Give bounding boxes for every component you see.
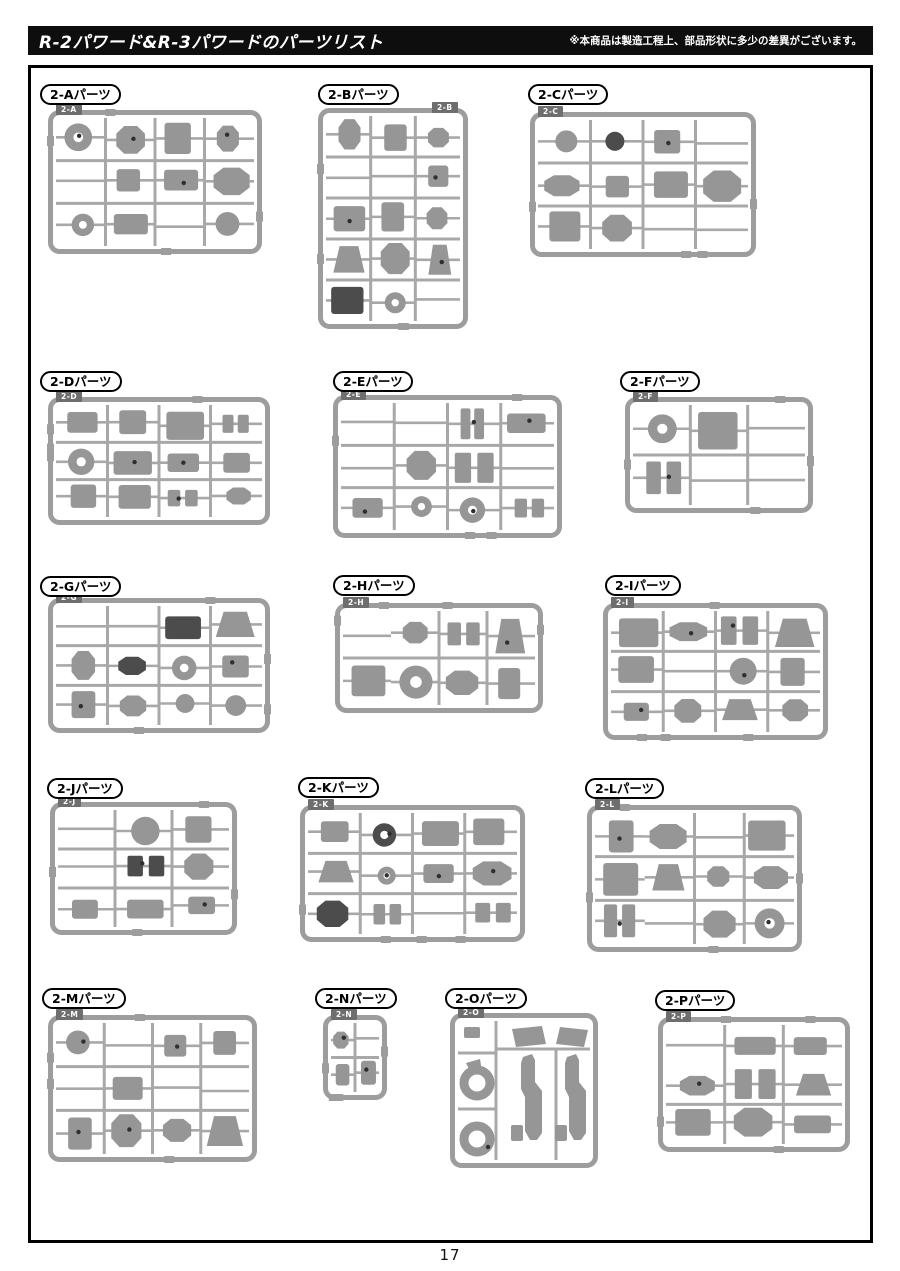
- section-label-2-g: 2-Gパーツ: [40, 576, 121, 597]
- runner-diagram-2-g: [48, 598, 270, 733]
- header-bar: R-2パワード&R-3パワードのパーツリスト ※本商品は製造工程上、部品形状に多…: [28, 26, 873, 55]
- runner-tag-2-c: 2-C: [538, 106, 563, 117]
- runner-diagram-2-k: [300, 805, 525, 942]
- runner-tag-2-f: 2-F: [633, 391, 658, 402]
- runner-tag-2-a: 2-A: [56, 104, 82, 115]
- runner-diagram-2-h: [335, 603, 543, 713]
- runner-tag-2-l: 2-L: [595, 799, 620, 810]
- manual-page: R-2パワード&R-3パワードのパーツリスト ※本商品は製造工程上、部品形状に多…: [0, 0, 900, 1271]
- runner-tag-2-m: 2-M: [56, 1009, 83, 1020]
- runner-diagram-2-o: [450, 1013, 598, 1168]
- section-label-2-h: 2-Hパーツ: [333, 575, 415, 596]
- runner-diagram-2-m: [48, 1015, 257, 1162]
- runner-diagram-2-a: [48, 110, 262, 254]
- section-label-2-b: 2-Bパーツ: [318, 84, 399, 105]
- runner-tag-2-p: 2-P: [666, 1011, 691, 1022]
- section-label-2-f: 2-Fパーツ: [620, 371, 700, 392]
- runner-tag-2-b: 2-B: [432, 102, 458, 113]
- header-note: ※本商品は製造工程上、部品形状に多少の差異がございます。: [569, 33, 862, 48]
- runner-tag-2-i: 2-I: [611, 597, 634, 608]
- runner-diagram-2-d: [48, 397, 270, 525]
- section-label-2-m: 2-Mパーツ: [42, 988, 126, 1009]
- section-label-2-l: 2-Lパーツ: [585, 778, 664, 799]
- runner-diagram-2-b: [318, 108, 468, 329]
- page-number: 17: [0, 1246, 900, 1264]
- section-label-2-d: 2-Dパーツ: [40, 371, 122, 392]
- runner-tag-2-n: 2-N: [331, 1009, 357, 1020]
- runner-diagram-2-e: [333, 395, 562, 538]
- runner-tag-2-k: 2-K: [308, 799, 334, 810]
- runner-diagram-2-f: [625, 397, 813, 513]
- runner-diagram-2-i: [603, 603, 828, 740]
- section-label-2-j: 2-Jパーツ: [47, 778, 123, 799]
- runner-tag-2-d: 2-D: [56, 391, 82, 402]
- section-label-2-p: 2-Pパーツ: [655, 990, 735, 1011]
- section-label-2-a: 2-Aパーツ: [40, 84, 121, 105]
- section-label-2-k: 2-Kパーツ: [298, 777, 379, 798]
- runner-diagram-2-l: [587, 805, 802, 952]
- runner-diagram-2-c: [530, 112, 756, 257]
- runner-diagram-2-p: [658, 1017, 850, 1152]
- section-label-2-o: 2-Oパーツ: [445, 988, 527, 1009]
- section-label-2-n: 2-Nパーツ: [315, 988, 397, 1009]
- section-label-2-i: 2-Iパーツ: [605, 575, 681, 596]
- page-title: R-2パワード&R-3パワードのパーツリスト: [39, 28, 383, 53]
- runner-tag-2-h: 2-H: [343, 597, 369, 608]
- section-label-2-c: 2-Cパーツ: [528, 84, 608, 105]
- section-label-2-e: 2-Eパーツ: [333, 371, 413, 392]
- runner-diagram-2-n: [323, 1015, 387, 1100]
- runner-diagram-2-j: [50, 802, 237, 935]
